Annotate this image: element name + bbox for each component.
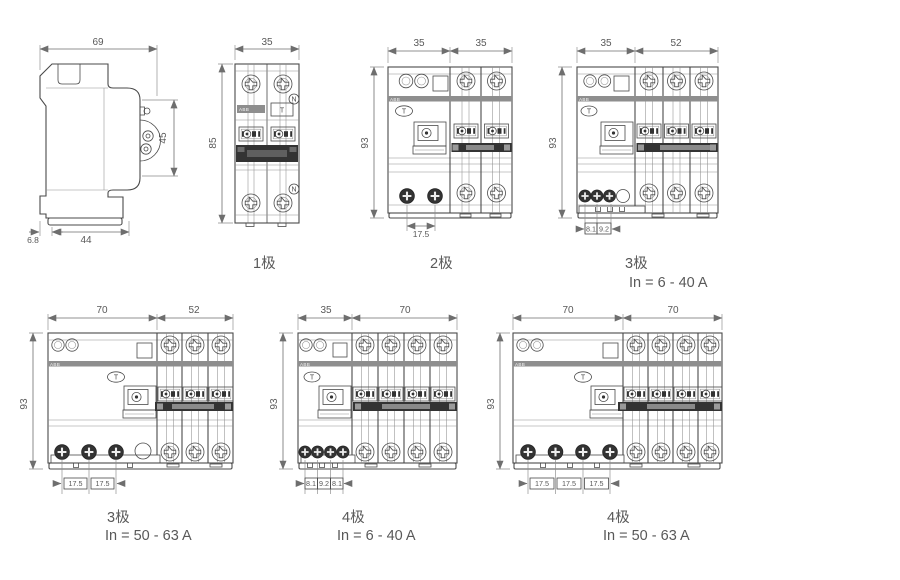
brand-label: ABB bbox=[50, 362, 60, 367]
dim-right-width-52: 52 bbox=[188, 305, 200, 316]
dim-terminal-height-45: 45 bbox=[158, 132, 169, 144]
dim-left-width-70: 70 bbox=[96, 305, 108, 316]
test-button-label: T bbox=[587, 109, 592, 116]
dim-pitch-17-5-b: 17.5 bbox=[96, 479, 110, 488]
dim-pitch-8-1-a: 8.1 bbox=[306, 479, 316, 488]
dim-height-93: 93 bbox=[360, 137, 371, 149]
test-button-label: T bbox=[402, 109, 407, 116]
brand-label: ABB bbox=[515, 362, 525, 367]
dim-right-width-35: 35 bbox=[475, 38, 487, 49]
dim-height-93: 93 bbox=[486, 398, 497, 410]
dim-left-width-35: 35 bbox=[413, 38, 425, 49]
dim-pitch-9-2: 9.2 bbox=[599, 225, 609, 234]
caption-3-pole-rating: In = 50 - 63 A bbox=[105, 528, 192, 544]
neutral-mark-bottom: N bbox=[291, 187, 296, 194]
dim-pitch-17-5-b: 17.5 bbox=[562, 479, 576, 488]
test-button-label: T bbox=[310, 375, 315, 382]
dim-pitch-8-1: 8.1 bbox=[586, 225, 596, 234]
dim-right-width-70: 70 bbox=[399, 305, 411, 316]
dim-height-93: 93 bbox=[269, 398, 280, 410]
caption-4-pole: 4极 bbox=[342, 509, 365, 526]
dim-width-69: 69 bbox=[92, 37, 104, 48]
caption-1-pole: 1极 bbox=[253, 255, 276, 272]
dim-left-width-35: 35 bbox=[320, 305, 332, 316]
brand-label: ABB bbox=[300, 362, 310, 367]
dim-height-93: 93 bbox=[548, 137, 559, 149]
dim-left-width-35: 35 bbox=[600, 38, 612, 49]
dimension-drawing-page: 69 45 6.8 44 ABB T N N 35 bbox=[0, 0, 900, 580]
brand-label: ABB bbox=[579, 97, 589, 102]
dim-pitch-17-5-a: 17.5 bbox=[69, 479, 83, 488]
test-button-label: T bbox=[581, 375, 586, 382]
dim-clip-depth-6-8: 6.8 bbox=[27, 235, 39, 245]
neutral-mark-top: N bbox=[291, 97, 296, 104]
caption-4-pole-rating: In = 6 - 40 A bbox=[337, 528, 416, 544]
dim-pitch-17-5-a: 17.5 bbox=[535, 479, 549, 488]
caption-3-pole-rating: In = 6 - 40 A bbox=[629, 275, 708, 291]
caption-2-pole: 2极 bbox=[430, 255, 453, 272]
dim-width-35: 35 bbox=[261, 37, 273, 48]
dim-pitch-9-2: 9.2 bbox=[319, 479, 329, 488]
dim-pitch-17-5-c: 17.5 bbox=[590, 479, 604, 488]
caption-4-pole: 4极 bbox=[607, 509, 630, 526]
test-button-label: T bbox=[114, 375, 119, 382]
brand-label: ABB bbox=[239, 107, 249, 112]
caption-4-pole-rating: In = 50 - 63 A bbox=[603, 528, 690, 544]
test-button-label: T bbox=[280, 108, 285, 115]
dim-right-width-70: 70 bbox=[667, 305, 679, 316]
dim-height-85: 85 bbox=[208, 137, 219, 149]
technical-drawing: 69 45 6.8 44 ABB T N N 35 bbox=[0, 0, 900, 580]
dim-pitch-8-1-b: 8.1 bbox=[332, 479, 342, 488]
dim-height-93: 93 bbox=[19, 398, 30, 410]
dim-right-width-52: 52 bbox=[670, 38, 682, 49]
caption-3-pole: 3极 bbox=[107, 509, 130, 526]
dim-base-width-44: 44 bbox=[80, 235, 92, 246]
caption-3-pole: 3极 bbox=[625, 255, 648, 272]
dim-pitch-17-5: 17.5 bbox=[413, 229, 430, 239]
brand-label: ABB bbox=[390, 97, 400, 102]
dim-left-width-70: 70 bbox=[562, 305, 574, 316]
